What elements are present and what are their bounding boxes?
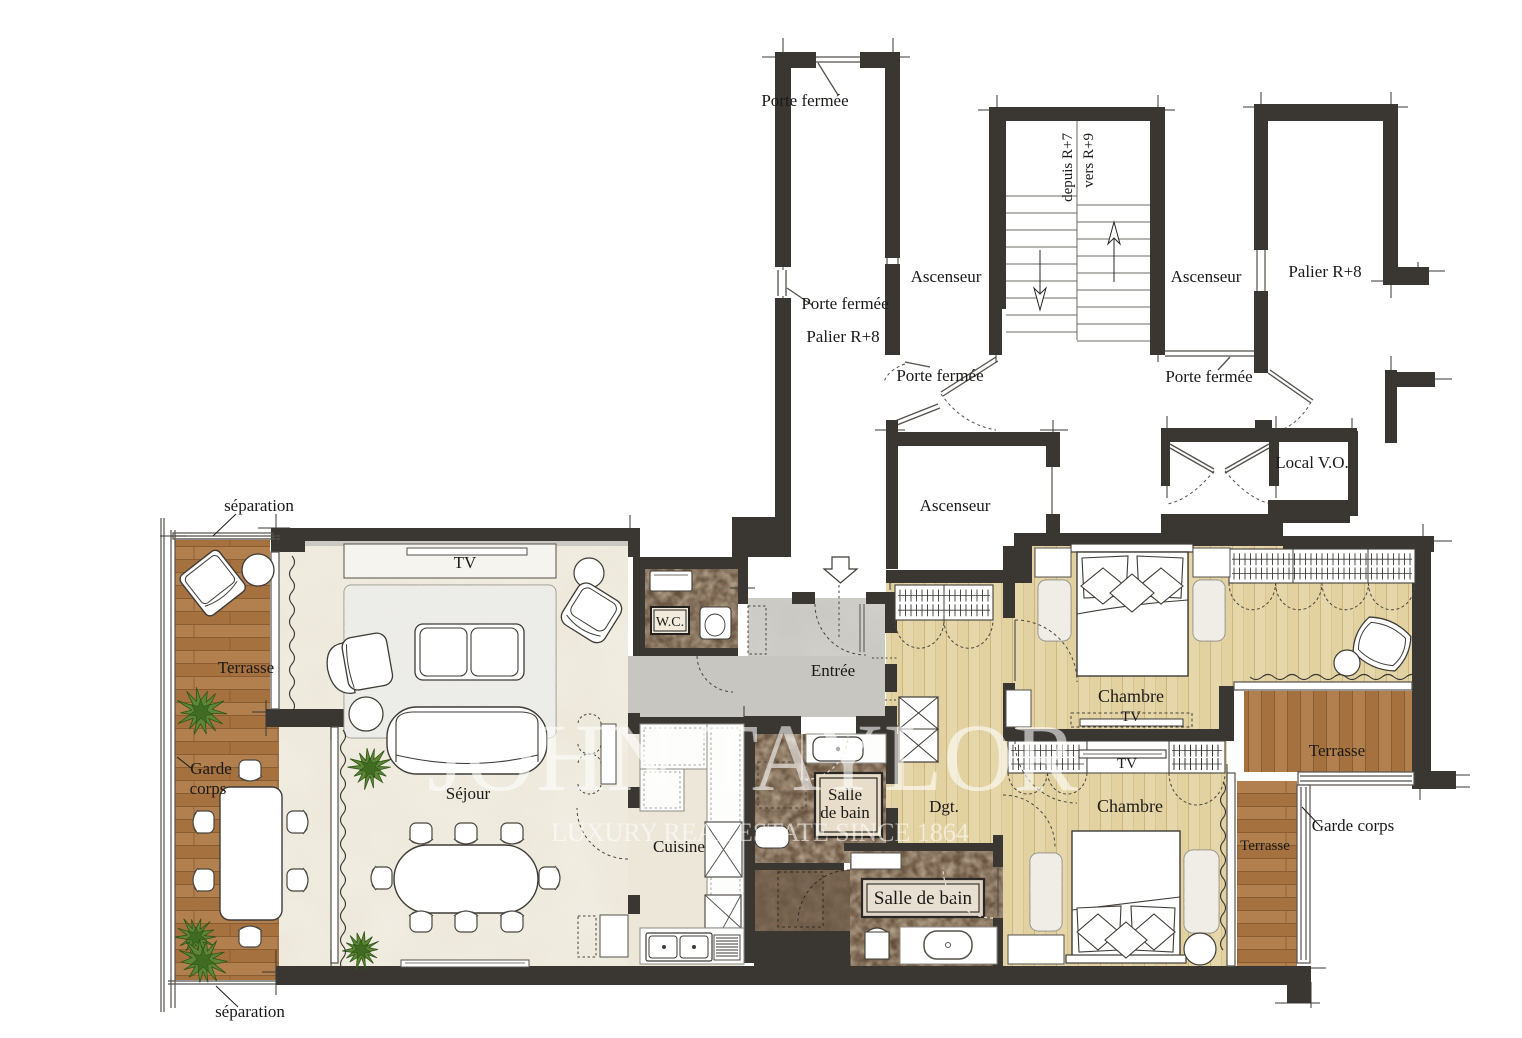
svg-text:Terrasse: Terrasse	[1240, 838, 1290, 854]
svg-text:Entrée: Entrée	[811, 661, 855, 680]
svg-text:Porte fermée: Porte fermée	[801, 294, 888, 313]
svg-text:Salle de bain: Salle de bain	[874, 888, 973, 909]
svg-text:Ascenseur: Ascenseur	[1171, 267, 1242, 286]
svg-text:LUXURY REAL ESTATE SINCE 1864: LUXURY REAL ESTATE SINCE 1864	[551, 818, 969, 847]
svg-text:Chambre: Chambre	[1097, 796, 1163, 816]
svg-text:TV: TV	[1121, 709, 1141, 725]
svg-text:Terrasse: Terrasse	[218, 658, 274, 677]
svg-text:TV: TV	[1117, 756, 1137, 772]
svg-text:corps: corps	[190, 779, 227, 798]
svg-text:vers R+9: vers R+9	[1081, 133, 1097, 188]
svg-text:TV: TV	[454, 553, 477, 572]
svg-text:Palier R+8: Palier R+8	[806, 327, 879, 346]
svg-text:Ascenseur: Ascenseur	[911, 267, 982, 286]
svg-text:Garde corps: Garde corps	[1312, 816, 1395, 835]
svg-text:séparation: séparation	[224, 496, 294, 515]
svg-text:W.C.: W.C.	[656, 615, 684, 630]
svg-text:depuis R+7: depuis R+7	[1060, 133, 1076, 202]
svg-text:Chambre: Chambre	[1098, 686, 1164, 706]
svg-text:Local V.O.: Local V.O.	[1275, 453, 1349, 472]
svg-text:Terrasse: Terrasse	[1309, 741, 1365, 760]
svg-text:Garde: Garde	[190, 759, 232, 778]
svg-text:Porte fermée: Porte fermée	[761, 91, 848, 110]
svg-text:séparation: séparation	[215, 1002, 285, 1021]
svg-text:Porte fermée: Porte fermée	[896, 366, 983, 385]
svg-text:Ascenseur: Ascenseur	[920, 496, 991, 515]
svg-text:JOHN TAYLOR: JOHN TAYLOR	[427, 704, 1078, 811]
svg-text:Porte fermée: Porte fermée	[1165, 367, 1252, 386]
svg-text:Palier R+8: Palier R+8	[1288, 262, 1361, 281]
